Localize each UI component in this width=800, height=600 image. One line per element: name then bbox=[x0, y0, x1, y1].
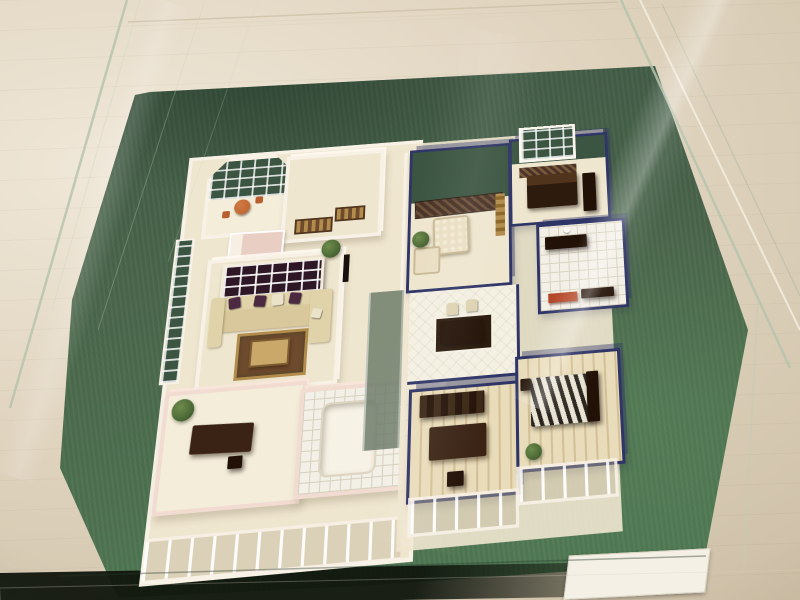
east-study bbox=[406, 380, 521, 504]
striped-bed bbox=[530, 373, 592, 427]
stair-void bbox=[362, 290, 404, 451]
east-study-chair bbox=[447, 471, 464, 487]
name-plaque bbox=[563, 548, 710, 600]
gold-rug bbox=[294, 217, 333, 235]
nightstand bbox=[520, 378, 530, 391]
southeast-bedroom bbox=[515, 348, 626, 473]
wardrobe bbox=[582, 172, 597, 211]
dark-bed bbox=[527, 172, 578, 209]
gold-console bbox=[495, 193, 505, 236]
gold-rug bbox=[335, 205, 366, 221]
west-living-room bbox=[194, 249, 345, 396]
bath-vanity bbox=[545, 234, 587, 250]
east-study-desk bbox=[429, 423, 487, 461]
cream-pillow bbox=[272, 293, 284, 306]
patio-table bbox=[233, 199, 250, 215]
study-chair bbox=[227, 455, 243, 469]
northeast-bedroom bbox=[509, 132, 611, 227]
white-vase bbox=[564, 226, 571, 233]
red-kitchen-counter bbox=[548, 291, 577, 303]
bed-pillow bbox=[229, 234, 243, 258]
purple-pillow bbox=[288, 292, 302, 304]
floral-armchair-small bbox=[413, 246, 440, 275]
patio-chair bbox=[222, 211, 230, 219]
purple-pillow bbox=[253, 295, 267, 307]
east-living-room bbox=[406, 143, 512, 294]
northeast-bay-window bbox=[519, 124, 576, 163]
headboard bbox=[586, 370, 600, 421]
study-desk bbox=[189, 422, 254, 454]
entry-hall-floor bbox=[407, 284, 520, 385]
coffee-table bbox=[248, 337, 290, 368]
dining-chair bbox=[466, 299, 478, 312]
floorplan-model bbox=[125, 124, 630, 597]
living-plant bbox=[412, 231, 429, 248]
study-plant bbox=[170, 398, 195, 422]
patio-chair bbox=[255, 196, 263, 204]
bookshelf bbox=[419, 390, 484, 418]
photo-architectural-model bbox=[0, 0, 800, 600]
counter-dark-top bbox=[581, 287, 614, 299]
sofa-arm-left bbox=[207, 297, 226, 348]
east-bathroom bbox=[536, 218, 629, 315]
bedroom-plant bbox=[525, 443, 542, 461]
north-bedroom bbox=[280, 149, 384, 243]
southwest-study bbox=[151, 381, 307, 517]
dining-table bbox=[440, 318, 483, 345]
dining-chair bbox=[446, 302, 458, 315]
